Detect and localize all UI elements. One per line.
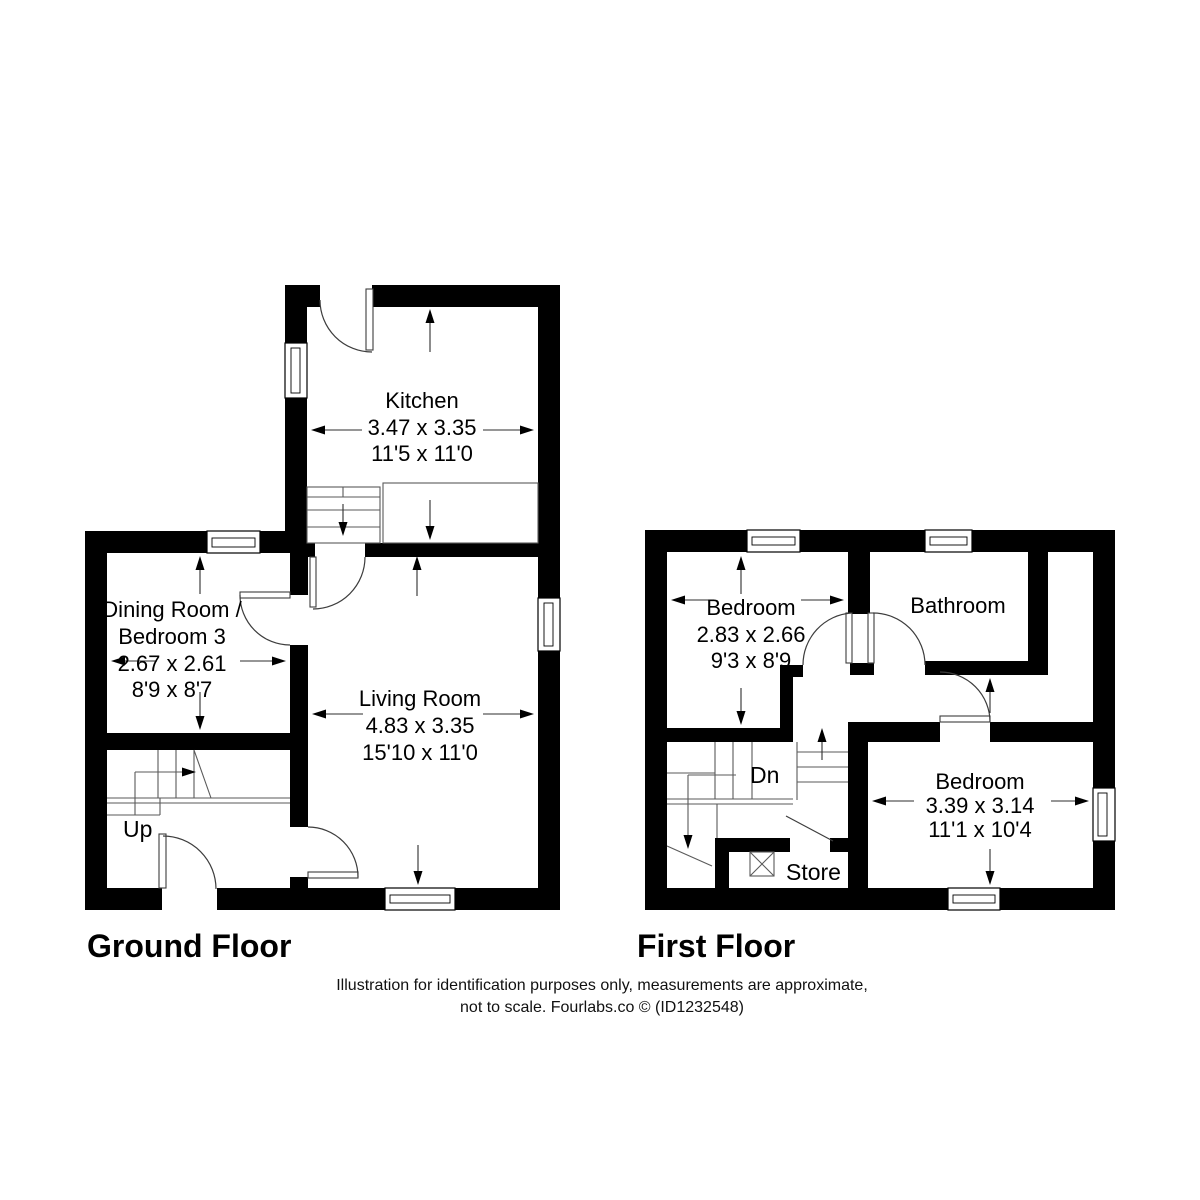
- bedroom1-window: [747, 530, 800, 552]
- ground-floor-labels: Kitchen 3.47 x 3.35 11'5 x 11'0 Dining R…: [87, 388, 481, 964]
- bedroom2-bottom-window: [948, 888, 1000, 910]
- up-stairs-label: Up: [123, 816, 152, 842]
- bedroom2-side-window: [1093, 788, 1115, 841]
- bedroom1-door: [803, 613, 852, 665]
- dining-label-line2: Bedroom 3: [118, 624, 226, 649]
- store-door: [786, 816, 833, 841]
- disclaimer: Illustration for identification purposes…: [336, 977, 868, 1016]
- floorplan-page: Kitchen 3.47 x 3.35 11'5 x 11'0 Dining R…: [0, 0, 1200, 1200]
- bedroom2-imperial: 11'1 x 10'4: [928, 817, 1031, 842]
- store-label: Store: [786, 859, 841, 885]
- dining-imperial: 8'9 x 8'7: [132, 677, 213, 702]
- bedroom1-imperial: 9'3 x 8'9: [711, 648, 792, 673]
- front-door: [159, 834, 216, 889]
- living-label: Living Room: [359, 686, 481, 711]
- disclaimer-line1: Illustration for identification purposes…: [336, 977, 868, 994]
- ground-floor-stairs: [107, 750, 290, 815]
- dining-metric: 2.67 x 2.61: [118, 651, 227, 676]
- dining-door: [240, 592, 290, 645]
- living-imperial: 15'10 x 11'0: [362, 740, 478, 765]
- first-floor-title: First Floor: [637, 928, 795, 964]
- kitchen-label: Kitchen: [385, 388, 458, 413]
- bedroom2-label: Bedroom: [935, 769, 1024, 794]
- kitchen-entry-door: [320, 289, 373, 352]
- dining-label-line1: Dining Room /: [102, 597, 242, 622]
- dining-window: [207, 531, 260, 553]
- ground-floor-title: Ground Floor: [87, 928, 291, 964]
- kitchen-window: [285, 343, 307, 398]
- first-floor-walls: [645, 530, 1115, 910]
- store-tank-icon: [750, 852, 774, 876]
- bedroom2-metric: 3.39 x 3.14: [926, 793, 1035, 818]
- kitchen-living-door: [310, 557, 365, 609]
- ground-floor-plan: Kitchen 3.47 x 3.35 11'5 x 11'0 Dining R…: [85, 285, 560, 964]
- living-side-window: [538, 598, 560, 651]
- kitchen-counter-right: [383, 483, 538, 543]
- floorplan-svg: Kitchen 3.47 x 3.35 11'5 x 11'0 Dining R…: [0, 0, 1200, 1200]
- bathroom-label: Bathroom: [910, 593, 1005, 618]
- disclaimer-line2: not to scale. Fourlabs.co © (ID1232548): [460, 999, 744, 1016]
- living-metric: 4.83 x 3.35: [366, 713, 475, 738]
- kitchen-counters: [307, 483, 538, 543]
- kitchen-metric: 3.47 x 3.35: [368, 415, 477, 440]
- kitchen-imperial: 11'5 x 11'0: [371, 441, 473, 466]
- bedroom1-label: Bedroom: [706, 595, 795, 620]
- bedroom2-door: [940, 672, 990, 722]
- first-floor-windows: [747, 530, 1115, 910]
- bedroom1-metric: 2.83 x 2.66: [697, 622, 806, 647]
- living-hall-door: [308, 827, 358, 878]
- first-floor-plan: Bedroom 2.83 x 2.66 9'3 x 8'9 Bathroom B…: [637, 530, 1115, 964]
- ground-floor-doors: [159, 289, 373, 889]
- living-bottom-window: [385, 888, 455, 910]
- bathroom-door: [868, 613, 925, 665]
- bathroom-window: [925, 530, 972, 552]
- dn-stairs-label: Dn: [750, 762, 779, 788]
